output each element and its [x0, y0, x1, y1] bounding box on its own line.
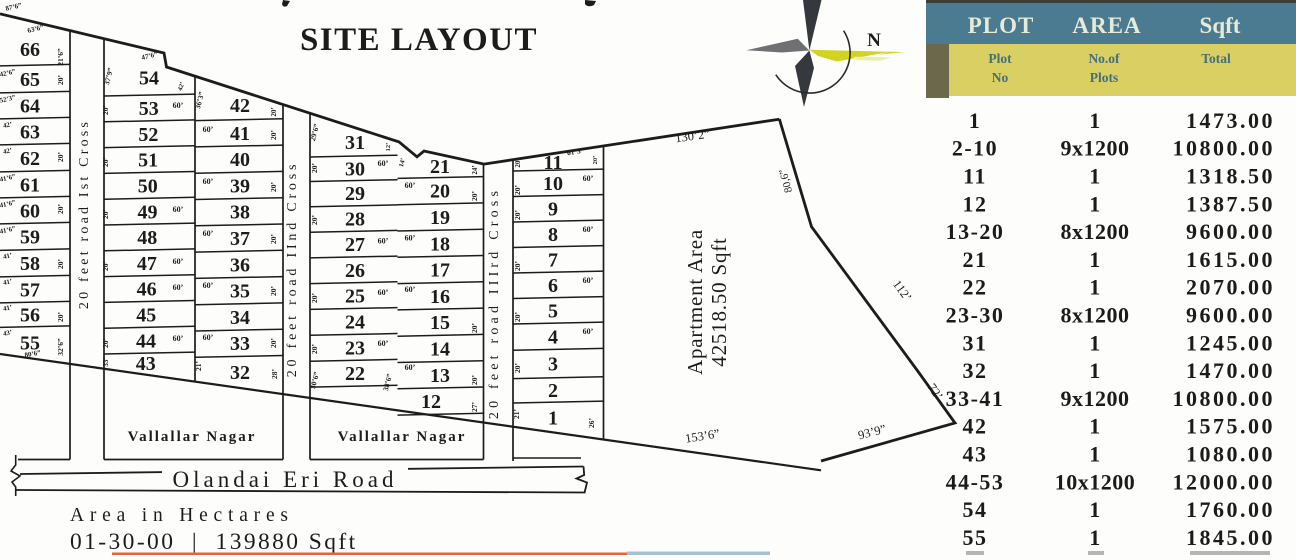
- svg-text:60’: 60’: [583, 276, 594, 285]
- svg-text:1245.00: 1245.00: [1186, 330, 1275, 355]
- svg-text:8x1200: 8x1200: [1061, 219, 1130, 244]
- svg-text:10: 10: [543, 173, 563, 195]
- svg-text:SITE LAYOUT: SITE LAYOUT: [300, 22, 538, 58]
- svg-text:Apartment Area: Apartment Area: [683, 229, 707, 375]
- svg-text:10800.00: 10800.00: [1173, 136, 1276, 161]
- svg-text:No: No: [992, 70, 1009, 85]
- svg-text:33-41: 33-41: [946, 386, 1005, 411]
- svg-text:Area in Hectares: Area in Hectares: [70, 505, 294, 526]
- svg-text:21: 21: [963, 247, 988, 272]
- svg-text:58: 58: [20, 253, 40, 275]
- svg-text:9600.00: 9600.00: [1186, 303, 1275, 328]
- svg-text:60’: 60’: [173, 205, 184, 214]
- svg-text:1: 1: [1089, 330, 1101, 355]
- svg-text:20’: 20’: [513, 363, 522, 373]
- svg-text:60’: 60’: [583, 174, 594, 183]
- svg-text:20 feet road Ist Cross: 20 feet road Ist Cross: [77, 119, 92, 309]
- svg-text:35: 35: [230, 281, 250, 303]
- svg-text:20’: 20’: [310, 344, 319, 354]
- svg-text:39: 39: [230, 175, 250, 197]
- svg-text:20’: 20’: [56, 204, 65, 214]
- svg-text:60’: 60’: [203, 229, 214, 238]
- svg-text:6: 6: [548, 275, 558, 297]
- svg-text:42: 42: [963, 414, 988, 439]
- svg-text:34: 34: [230, 307, 250, 329]
- svg-text:2-10: 2-10: [952, 136, 998, 161]
- svg-text:65: 65: [20, 69, 40, 91]
- svg-text:18: 18: [430, 233, 450, 255]
- svg-text:60’: 60’: [173, 283, 184, 292]
- svg-text:AREA: AREA: [1072, 13, 1141, 38]
- svg-text:Vallallar Nagar: Vallallar Nagar: [128, 429, 257, 445]
- svg-text:1: 1: [1089, 358, 1101, 383]
- svg-text:30: 30: [345, 158, 365, 180]
- svg-text:49: 49: [138, 201, 158, 223]
- svg-text:31: 31: [345, 132, 365, 154]
- svg-text:55: 55: [963, 525, 988, 550]
- svg-text:20’: 20’: [270, 107, 278, 116]
- svg-text:27’: 27’: [470, 402, 479, 412]
- svg-text:13-20: 13-20: [946, 219, 1005, 244]
- svg-text:9x1200: 9x1200: [1061, 386, 1130, 411]
- svg-text:60’: 60’: [203, 125, 214, 134]
- svg-text:60’: 60’: [378, 288, 389, 297]
- svg-text:20’: 20’: [513, 261, 522, 271]
- svg-text:40: 40: [230, 149, 250, 171]
- svg-text:1080.00: 1080.00: [1186, 442, 1275, 467]
- svg-text:54: 54: [139, 68, 159, 90]
- svg-text:57: 57: [20, 279, 40, 301]
- svg-text:32: 32: [230, 362, 250, 384]
- svg-text:9600.00: 9600.00: [1186, 219, 1275, 244]
- svg-text:26’: 26’: [587, 418, 596, 428]
- svg-text:52: 52: [138, 124, 158, 146]
- svg-text:20’: 20’: [101, 157, 110, 167]
- svg-text:01-30-00 | 139880 Sqft: 01-30-00 | 139880 Sqft: [70, 529, 358, 555]
- svg-text:28’: 28’: [270, 369, 279, 379]
- svg-text:20’: 20’: [56, 312, 65, 322]
- svg-text:21: 21: [430, 156, 450, 178]
- svg-text:11: 11: [963, 164, 987, 189]
- svg-text:60’: 60’: [378, 339, 389, 348]
- svg-text:44: 44: [136, 330, 156, 352]
- svg-text:16: 16: [430, 286, 450, 308]
- svg-text:Olandai Eri Road: Olandai Eri Road: [173, 467, 398, 492]
- svg-text:23-30: 23-30: [946, 303, 1005, 328]
- svg-text:8x1200: 8x1200: [1061, 303, 1130, 328]
- svg-text:1: 1: [1089, 497, 1101, 522]
- svg-text:20 feet road IIIrd Cross: 20 feet road IIIrd Cross: [487, 187, 502, 419]
- svg-text:8: 8: [548, 224, 558, 246]
- svg-text:60’: 60’: [378, 159, 389, 168]
- svg-text:20’: 20’: [269, 182, 278, 192]
- svg-text:36: 36: [230, 254, 250, 276]
- svg-text:60: 60: [20, 200, 40, 222]
- svg-text:60’: 60’: [203, 177, 214, 186]
- svg-text:21’: 21’: [194, 361, 203, 371]
- svg-text:29: 29: [345, 183, 365, 205]
- svg-text:12: 12: [963, 191, 988, 216]
- svg-text:3: 3: [548, 354, 558, 376]
- svg-text:20’: 20’: [513, 185, 522, 195]
- svg-text:20’: 20’: [56, 75, 65, 85]
- svg-text:23: 23: [345, 337, 365, 359]
- svg-text:20 feet road IInd Cross: 20 feet road IInd Cross: [285, 161, 300, 377]
- svg-text:46: 46: [137, 279, 157, 301]
- svg-text:43: 43: [136, 353, 156, 375]
- svg-text:60’: 60’: [173, 334, 184, 343]
- svg-text:1: 1: [969, 108, 982, 133]
- svg-text:51: 51: [138, 150, 158, 172]
- svg-text:20’: 20’: [269, 338, 278, 348]
- svg-text:1470.00: 1470.00: [1186, 358, 1275, 383]
- svg-text:26: 26: [345, 260, 365, 282]
- svg-text:20’: 20’: [310, 293, 319, 303]
- svg-text:Vallallar Nagar: Vallallar Nagar: [338, 429, 467, 445]
- svg-text:1473.00: 1473.00: [1186, 108, 1275, 133]
- svg-text:1: 1: [1089, 414, 1101, 439]
- svg-text:17: 17: [430, 260, 450, 282]
- svg-text:27: 27: [345, 234, 365, 256]
- svg-text:22: 22: [963, 275, 988, 300]
- svg-text:60’: 60’: [173, 257, 184, 266]
- svg-text:10x1200: 10x1200: [1055, 469, 1136, 494]
- svg-text:33: 33: [230, 333, 250, 355]
- svg-text:20’: 20’: [101, 338, 110, 348]
- svg-text:Total: Total: [1201, 51, 1231, 66]
- svg-text:60’: 60’: [583, 327, 594, 336]
- svg-text:48: 48: [137, 227, 157, 249]
- svg-text:38: 38: [230, 202, 250, 224]
- svg-text:20’: 20’: [592, 156, 599, 165]
- svg-text:11: 11: [544, 152, 563, 174]
- svg-text:12: 12: [421, 391, 441, 413]
- svg-text:20’: 20’: [269, 130, 278, 140]
- svg-text:33’: 33’: [102, 357, 110, 366]
- svg-text:4: 4: [548, 326, 558, 348]
- svg-text:Plots: Plots: [1090, 70, 1119, 85]
- svg-text:44-53: 44-53: [946, 469, 1005, 494]
- svg-text:21’: 21’: [512, 409, 521, 419]
- svg-text:1: 1: [1089, 164, 1101, 189]
- svg-text:60’: 60’: [405, 181, 416, 190]
- svg-text:20’: 20’: [269, 234, 278, 244]
- svg-text:54: 54: [963, 497, 988, 522]
- svg-text:No.of: No.of: [1088, 51, 1120, 66]
- svg-text:19: 19: [430, 207, 450, 229]
- svg-text:32: 32: [963, 358, 988, 383]
- svg-text:60’: 60’: [405, 363, 416, 372]
- svg-text:20’: 20’: [513, 210, 522, 220]
- svg-text:20’: 20’: [101, 261, 110, 271]
- svg-text:14: 14: [430, 339, 450, 361]
- svg-text:20’: 20’: [470, 191, 479, 201]
- svg-text:Sqft: Sqft: [1200, 13, 1241, 38]
- svg-text:PLOT: PLOT: [968, 13, 1035, 38]
- svg-text:60’: 60’: [173, 101, 184, 110]
- svg-text:60’: 60’: [203, 333, 214, 342]
- svg-text:60’: 60’: [583, 225, 594, 234]
- svg-text:1: 1: [1089, 275, 1101, 300]
- svg-text:50: 50: [138, 176, 158, 198]
- svg-text:13: 13: [430, 365, 450, 387]
- svg-text:Plot: Plot: [988, 51, 1012, 66]
- svg-text:45: 45: [136, 305, 156, 327]
- svg-text:5: 5: [548, 300, 558, 322]
- svg-text:25: 25: [345, 286, 365, 308]
- svg-text:7: 7: [548, 249, 558, 271]
- svg-text:1: 1: [1089, 442, 1101, 467]
- svg-text:20’: 20’: [101, 105, 110, 115]
- svg-text:9: 9: [548, 198, 558, 220]
- svg-text:1: 1: [548, 407, 558, 429]
- svg-text:28: 28: [345, 209, 365, 231]
- svg-text:24: 24: [345, 311, 365, 333]
- svg-text:2070.00: 2070.00: [1186, 275, 1275, 300]
- svg-text:20’: 20’: [56, 152, 65, 162]
- svg-text:24’: 24’: [471, 165, 479, 174]
- svg-text:41: 41: [230, 123, 250, 145]
- svg-text:22: 22: [345, 363, 365, 385]
- svg-text:60’: 60’: [378, 237, 389, 246]
- svg-text:63: 63: [20, 121, 40, 143]
- svg-text:12’: 12’: [385, 143, 392, 152]
- svg-text:61: 61: [20, 174, 40, 196]
- svg-text:32’6”: 32’6”: [56, 338, 65, 356]
- svg-text:1: 1: [1089, 247, 1101, 272]
- svg-text:20’: 20’: [310, 215, 319, 225]
- svg-text:1: 1: [1089, 108, 1101, 133]
- svg-text:1575.00: 1575.00: [1186, 414, 1275, 439]
- svg-text:56: 56: [20, 305, 40, 327]
- svg-text:47: 47: [137, 253, 157, 275]
- svg-text:62: 62: [20, 148, 40, 170]
- svg-text:1318.50: 1318.50: [1186, 164, 1275, 189]
- svg-text:12000.00: 12000.00: [1173, 469, 1276, 494]
- svg-text:1615.00: 1615.00: [1186, 247, 1275, 272]
- svg-text:66: 66: [20, 39, 40, 61]
- svg-text:1760.00: 1760.00: [1186, 497, 1275, 522]
- svg-text:21’6”: 21’6”: [56, 48, 65, 66]
- svg-text:31: 31: [963, 330, 988, 355]
- svg-text:15: 15: [430, 312, 450, 334]
- svg-text:20’: 20’: [56, 259, 65, 269]
- svg-text:59: 59: [20, 227, 40, 249]
- svg-text:20’: 20’: [514, 158, 522, 167]
- svg-text:37: 37: [230, 228, 250, 250]
- svg-text:1: 1: [1089, 191, 1101, 216]
- svg-text:20’: 20’: [269, 286, 278, 296]
- svg-text:60’: 60’: [203, 281, 214, 290]
- svg-text:10800.00: 10800.00: [1173, 386, 1276, 411]
- svg-text:20’: 20’: [513, 312, 522, 322]
- svg-text:20’: 20’: [470, 375, 479, 385]
- svg-text:20’: 20’: [310, 163, 319, 173]
- svg-text:1387.50: 1387.50: [1186, 191, 1275, 216]
- svg-text:1845.00: 1845.00: [1186, 525, 1275, 550]
- svg-text:42518.50 Sqft: 42518.50 Sqft: [707, 237, 731, 366]
- svg-text:42: 42: [230, 95, 250, 117]
- svg-text:60’: 60’: [405, 234, 416, 243]
- svg-text:2: 2: [548, 380, 558, 402]
- svg-text:53: 53: [139, 98, 159, 120]
- svg-text:N: N: [867, 30, 881, 51]
- svg-text:9x1200: 9x1200: [1061, 136, 1130, 161]
- svg-text:43: 43: [963, 442, 988, 467]
- svg-text:1: 1: [1089, 525, 1101, 550]
- svg-text:64: 64: [20, 95, 40, 117]
- svg-text:20’: 20’: [470, 323, 479, 333]
- svg-text:60’: 60’: [405, 285, 416, 294]
- svg-text:20’: 20’: [101, 209, 110, 219]
- svg-text:20: 20: [430, 181, 450, 203]
